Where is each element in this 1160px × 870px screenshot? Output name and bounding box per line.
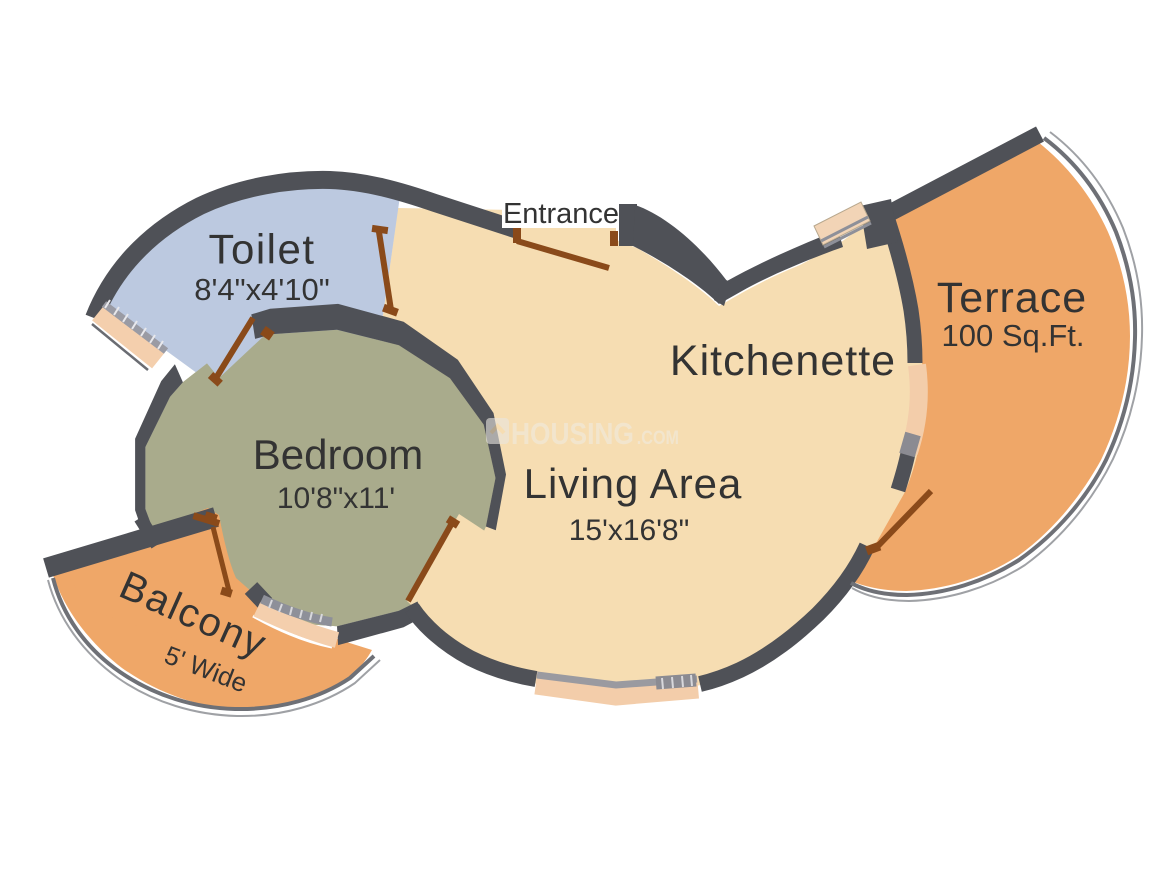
svg-text:Entrance: Entrance	[503, 198, 619, 230]
svg-text:Kitchenette: Kitchenette	[670, 337, 896, 385]
svg-text:15'x16'8": 15'x16'8"	[569, 514, 690, 547]
svg-text:100 Sq.Ft.: 100 Sq.Ft.	[941, 318, 1084, 353]
svg-text:Bedroom: Bedroom	[253, 431, 423, 478]
svg-text:Living Area: Living Area	[524, 460, 743, 507]
svg-text:Terrace: Terrace	[937, 274, 1087, 322]
svg-text:.COM: .COM	[637, 427, 679, 449]
svg-text:Toilet: Toilet	[208, 226, 315, 273]
svg-text:10'8"x11': 10'8"x11'	[277, 482, 395, 515]
svg-text:HOUSING: HOUSING	[511, 417, 634, 451]
svg-text:8'4"x4'10": 8'4"x4'10"	[194, 272, 330, 307]
